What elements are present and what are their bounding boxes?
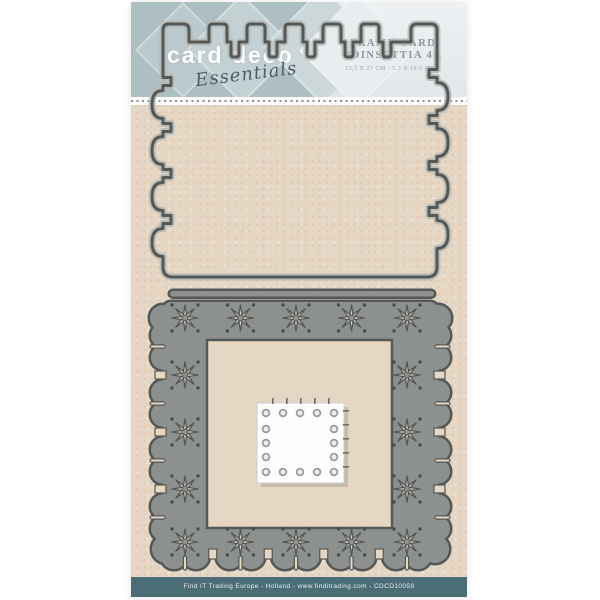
- dotted-tear-line: [131, 100, 467, 102]
- footer-text: Find IT Trading Europe - Holland - www.f…: [184, 583, 415, 590]
- kraft-backing-board: [131, 105, 467, 577]
- package-header: card deco Essentials FRAME CARD POINSETT…: [131, 2, 467, 97]
- product-dimensions: 13,5 X 27 CM - 5.3 X 10.6 INCH: [343, 66, 443, 72]
- footer-band: Find IT Trading Europe - Holland - www.f…: [131, 577, 467, 597]
- product-title-line1: FRAME CARD: [343, 38, 443, 50]
- perforation-line: [131, 97, 467, 105]
- product-title-line2: POINSETTIA 4K: [343, 50, 443, 62]
- page: { "brand": { "name": "card deco", "tagli…: [0, 0, 600, 600]
- product-photo: card deco Essentials FRAME CARD POINSETT…: [131, 2, 467, 597]
- product-title-block: FRAME CARD POINSETTIA 4K 13,5 X 27 CM - …: [343, 38, 443, 72]
